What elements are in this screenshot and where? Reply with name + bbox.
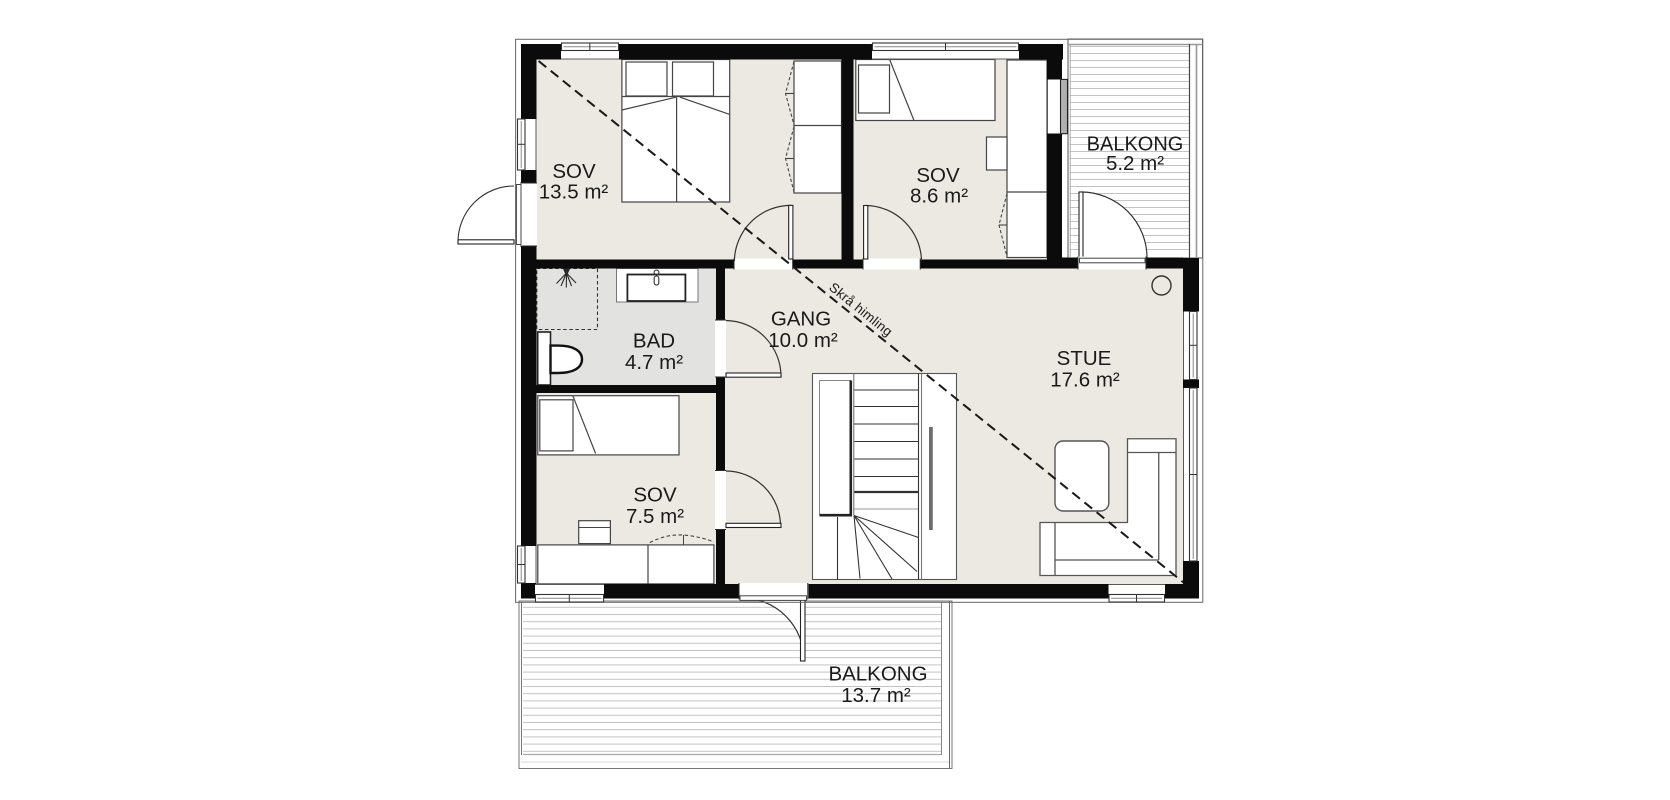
svg-text:4.7 m²: 4.7 m² (625, 351, 683, 374)
svg-text:BALKONG: BALKONG (828, 662, 927, 685)
svg-text:13.5 m²: 13.5 m² (539, 181, 609, 204)
svg-text:GANG: GANG (771, 308, 831, 331)
svg-text:5.2 m²: 5.2 m² (1106, 152, 1164, 175)
svg-text:10.0 m²: 10.0 m² (768, 329, 838, 352)
svg-text:13.7 m²: 13.7 m² (841, 684, 911, 707)
svg-text:7.5 m²: 7.5 m² (626, 505, 684, 528)
svg-text:SOV: SOV (633, 484, 677, 507)
svg-text:STUE: STUE (1057, 347, 1112, 370)
svg-text:8.6 m²: 8.6 m² (910, 184, 968, 207)
svg-text:17.6 m²: 17.6 m² (1050, 369, 1120, 392)
svg-text:BAD: BAD (633, 330, 675, 353)
